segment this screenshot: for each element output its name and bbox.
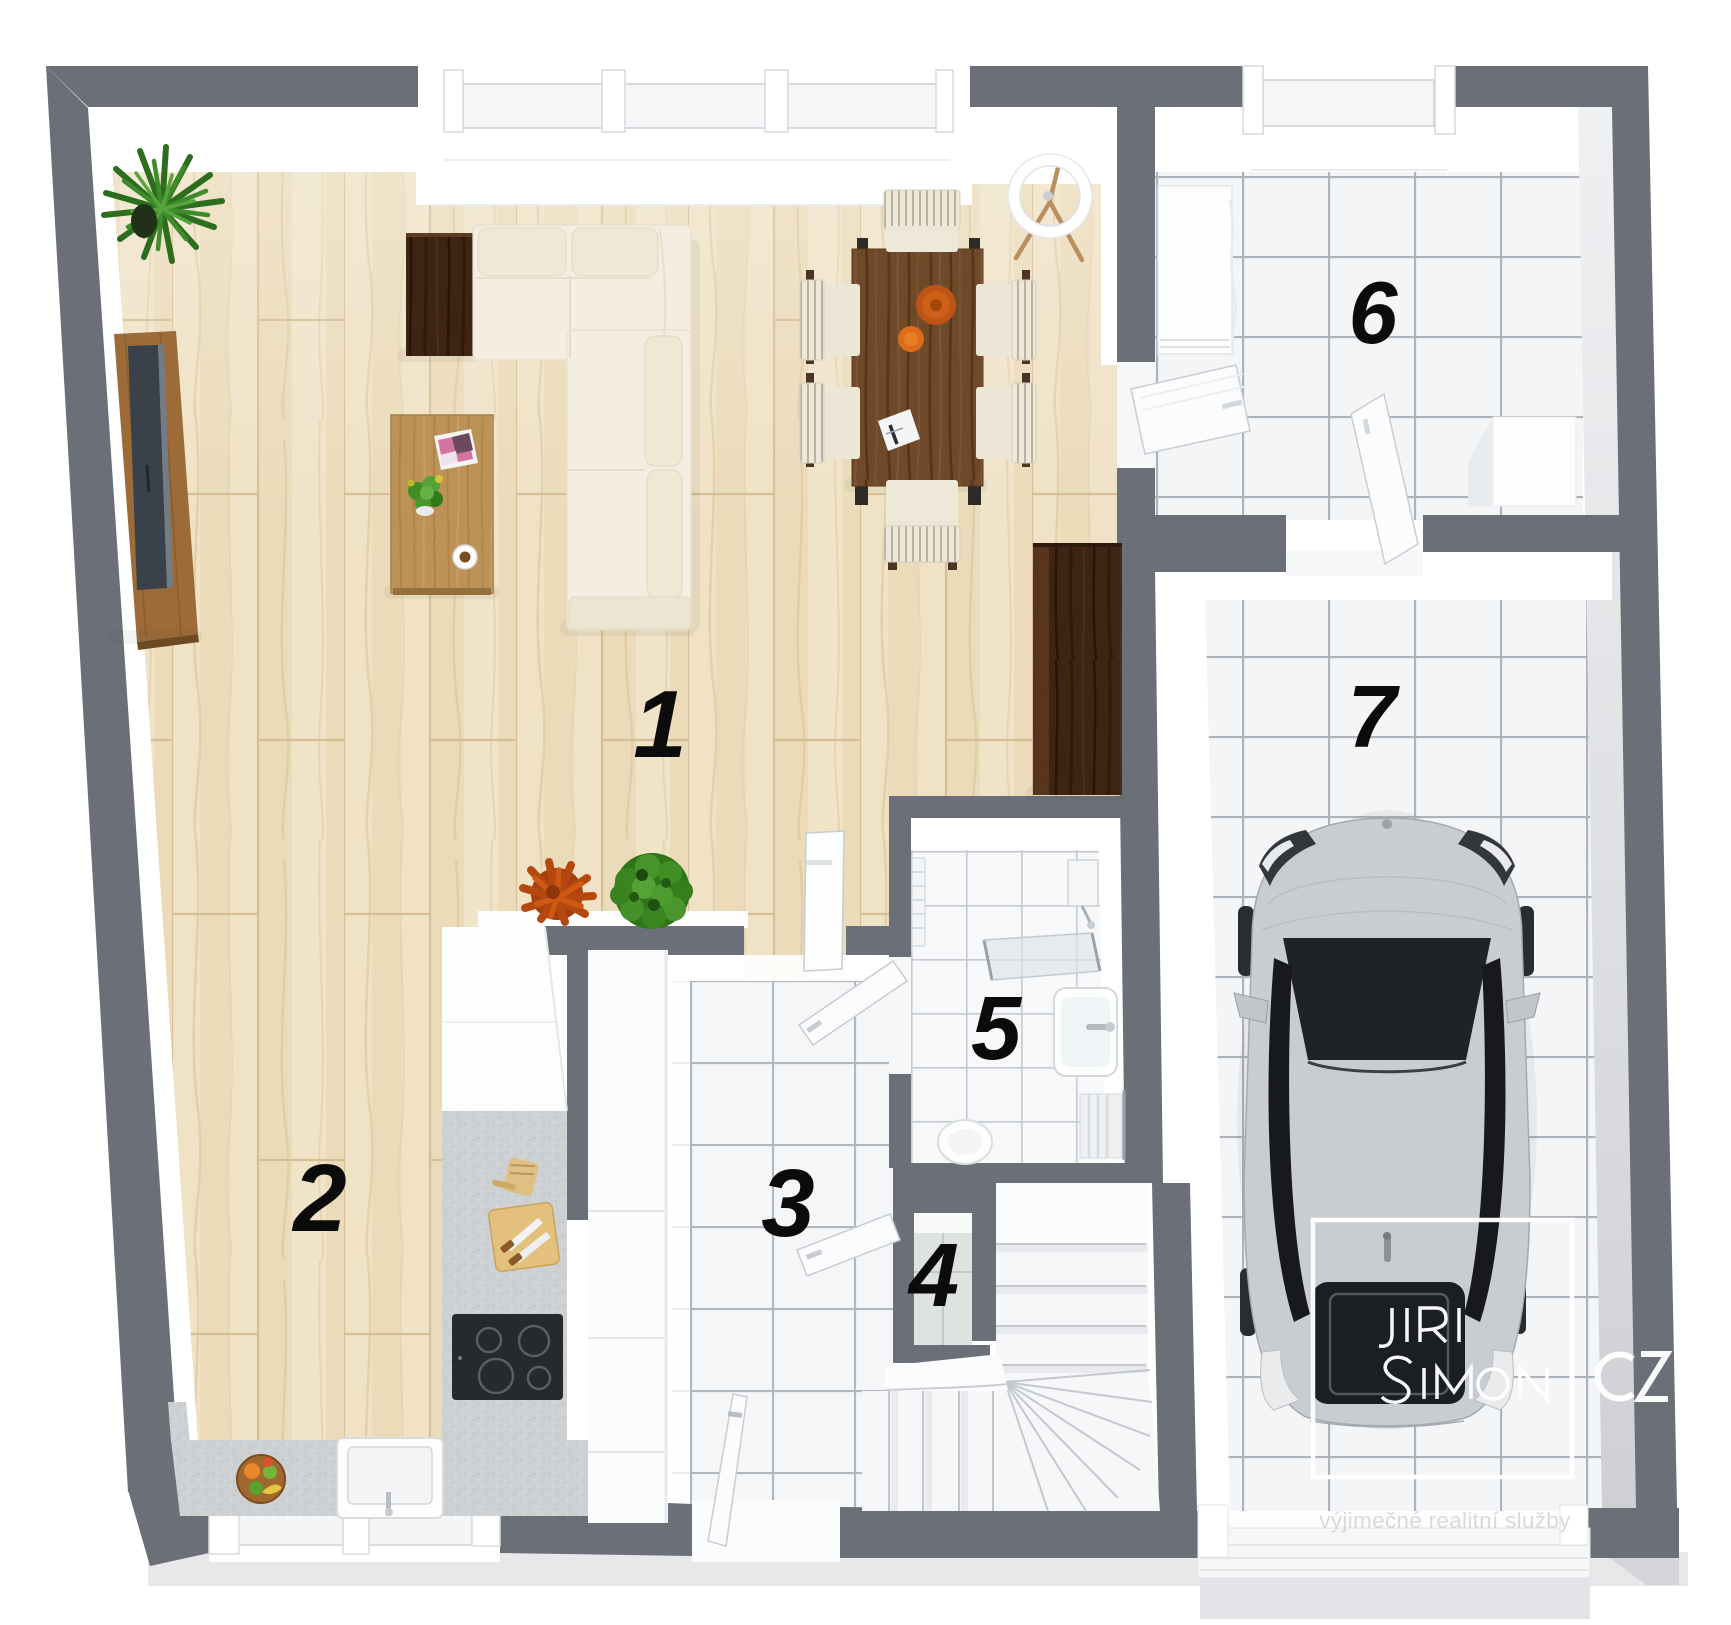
svg-text:3: 3 bbox=[761, 1150, 814, 1257]
svg-text:1: 1 bbox=[633, 671, 686, 778]
svg-text:4: 4 bbox=[907, 1226, 959, 1326]
svg-text:výjimečné realitní služby: výjimečné realitní služby bbox=[1319, 1508, 1571, 1533]
svg-text:5: 5 bbox=[971, 979, 1023, 1079]
svg-text:6: 6 bbox=[1349, 263, 1399, 362]
svg-text:7: 7 bbox=[1348, 667, 1401, 766]
svg-text:2: 2 bbox=[291, 1145, 346, 1252]
